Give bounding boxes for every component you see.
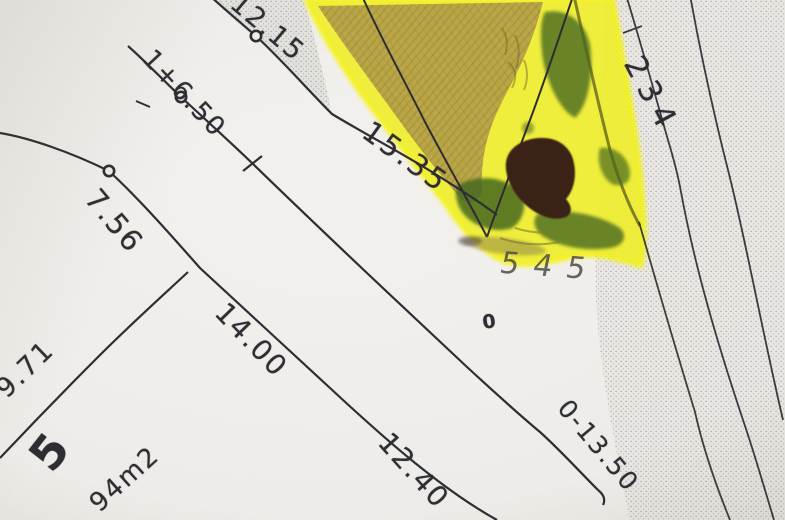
pencil-dash (136, 101, 150, 107)
survey-plan-photo: 12.15 1+6.50 7.56 15.35 234 14.00 12.40 … (0, 0, 785, 520)
station-circle-7-56 (104, 166, 114, 176)
pencil-note-545: 545 (497, 246, 603, 287)
zero-mark-label: 0 (481, 310, 499, 334)
line-end-hook (598, 490, 604, 505)
